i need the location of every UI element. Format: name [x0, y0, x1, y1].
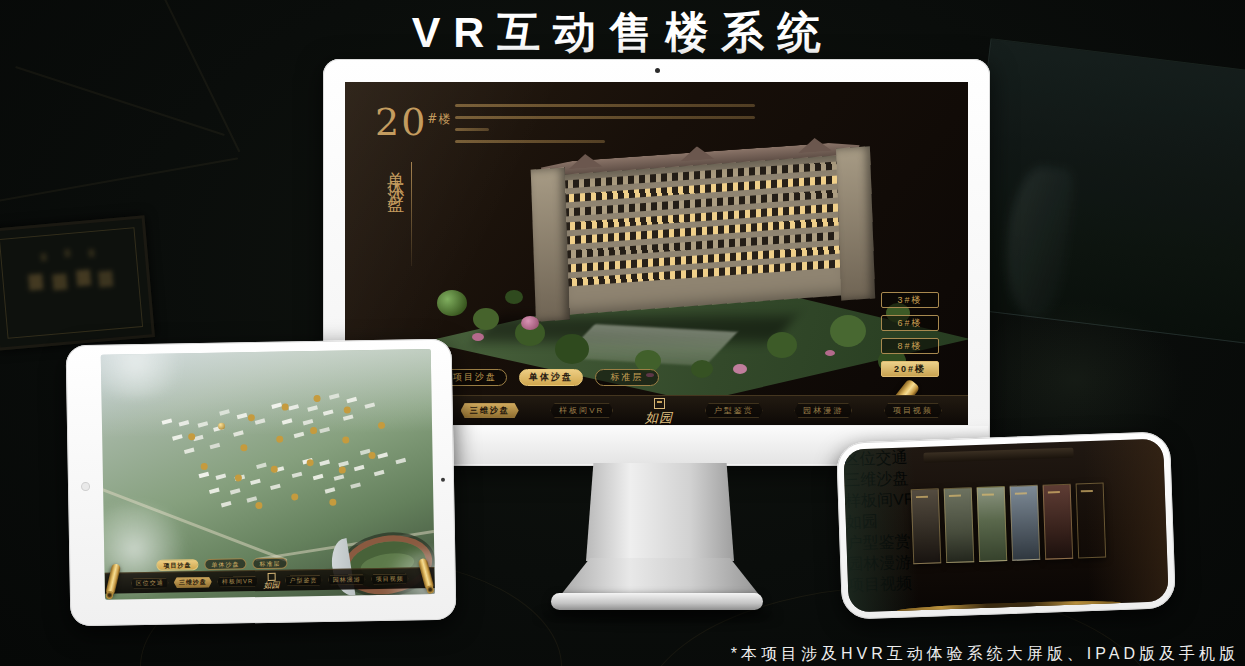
tablet-mode-tab-bar: 项目沙盘 单体沙盘 标准层 [156, 558, 287, 571]
tablet-brand-seal-icon [267, 572, 275, 580]
tablet-nav-showroom-vr[interactable]: 样板间VR [217, 576, 259, 588]
tablet-tab-standard-floor[interactable]: 标准层 [252, 558, 287, 570]
tab-standard-floor[interactable]: 标准层 [595, 369, 659, 386]
model-shadow [474, 316, 796, 342]
tab-project-sandbox[interactable]: 项目沙盘 [443, 369, 507, 386]
tablet-device: 项目沙盘 单体沙盘 标准层 区位交通 三维沙盘 样板间VR 如园 户型鉴赏 园林… [66, 339, 457, 627]
gallery-panel[interactable] [944, 487, 975, 563]
floor-button-20[interactable]: 20#楼 [881, 361, 939, 377]
gallery-panel[interactable] [1010, 485, 1041, 561]
model-flower-bushes [521, 316, 539, 330]
roof-gable [568, 153, 602, 169]
tablet-home-button[interactable] [441, 477, 445, 481]
tablet-tab-single-sandbox[interactable]: 单体沙盘 [204, 558, 246, 570]
building-number: 20 [375, 100, 427, 144]
panorama-gallery [911, 483, 1106, 565]
nav-item-project-video[interactable]: 项目视频 [884, 403, 942, 418]
model-building [550, 142, 855, 331]
interior-wall-left [843, 447, 919, 612]
monitor-stand-base [551, 593, 763, 610]
phone-device: 区位交通 三维沙盘 样板间VR 如园 户型鉴赏 园林漫游 项目视频 [836, 431, 1176, 620]
tablet-nav-garden-roam[interactable]: 园林漫游 [328, 574, 366, 586]
model-facade [551, 155, 855, 316]
promo-canvas: VR互动售楼系统 20#楼 单体沙盘 [0, 0, 1245, 666]
nav-item-showroom-vr[interactable]: 样板间VR [550, 403, 613, 418]
background-landscape-photo [958, 38, 1245, 344]
gallery-panel[interactable] [1043, 484, 1074, 560]
scroll-handle-icon[interactable] [880, 378, 920, 423]
gallery-panel[interactable] [977, 486, 1008, 562]
building-headline: 20#楼 [375, 100, 451, 144]
tab-single-sandbox[interactable]: 单体沙盘 [519, 369, 583, 386]
monitor-camera-dot [655, 68, 660, 73]
brand-seal-icon [654, 398, 665, 409]
gallery-panel[interactable] [911, 488, 942, 564]
page-title: VR互动售楼系统 [0, 4, 1245, 62]
aerial-buildings [199, 472, 210, 478]
monitor-stand-neck [586, 463, 734, 561]
aerial-buildings [302, 458, 313, 464]
background-award-plaque [0, 215, 155, 350]
brand-logo-text: 如园 [645, 411, 673, 424]
phone-screen: 区位交通 三维沙盘 样板间VR 如园 户型鉴赏 园林漫游 项目视频 [843, 438, 1168, 612]
tablet-nav-project-video[interactable]: 项目视频 [371, 573, 409, 585]
building-3d-model[interactable] [425, 148, 968, 406]
background-map-texture [0, 40, 350, 300]
tablet-tab-project-sandbox[interactable]: 项目沙盘 [156, 559, 198, 571]
tablet-brand-logo: 如园 [263, 572, 279, 589]
roof-gable [680, 145, 714, 161]
model-trees [437, 290, 467, 316]
floor-button-8[interactable]: 8#楼 [881, 338, 939, 354]
floor-button-6[interactable]: 6#楼 [881, 315, 939, 331]
tablet-screen: 项目沙盘 单体沙盘 标准层 区位交通 三维沙盘 样板间VR 如园 户型鉴赏 园林… [101, 349, 435, 600]
tablet-camera-dot [81, 481, 90, 490]
nav-item-3d-sandbox[interactable]: 三维沙盘 [461, 403, 519, 418]
tablet-nav-unit-plans[interactable]: 户型鉴赏 [284, 574, 322, 586]
floor-button-3[interactable]: 3#楼 [881, 292, 939, 308]
footnote-text: *本项目涉及HVR互动体验系统大屏版、IPAD版及手机版 [731, 644, 1239, 665]
model-wing-left [531, 167, 570, 321]
tablet-brand-logo-text: 如园 [263, 581, 279, 589]
headline-vertical-subtitle: 单体沙盘 [385, 158, 408, 288]
tablet-nav-location[interactable]: 区位交通 [131, 577, 169, 589]
roof-gable [798, 137, 832, 153]
model-base-platform [425, 276, 968, 402]
tablet-nav-3d-sandbox[interactable]: 三维沙盘 [174, 576, 212, 588]
model-walkway [562, 324, 737, 366]
nav-item-unit-plans[interactable]: 户型鉴赏 [705, 403, 763, 418]
headline-rule [411, 162, 412, 266]
building-unit-label: #楼 [427, 112, 451, 126]
monitor-stand-flare [560, 558, 760, 596]
mode-tab-bar: 项目沙盘 单体沙盘 标准层 [443, 369, 659, 386]
floor-button-group: 3#楼 6#楼 8#楼 20#楼 [881, 292, 941, 384]
description-text-block [455, 104, 755, 152]
stand-shadow [540, 610, 776, 622]
gallery-panel[interactable] [1076, 483, 1107, 559]
brand-logo: 如园 [645, 398, 673, 424]
nav-item-garden-roam[interactable]: 园林漫游 [794, 403, 852, 418]
model-wing-right [836, 146, 875, 300]
model-roof [540, 141, 860, 178]
